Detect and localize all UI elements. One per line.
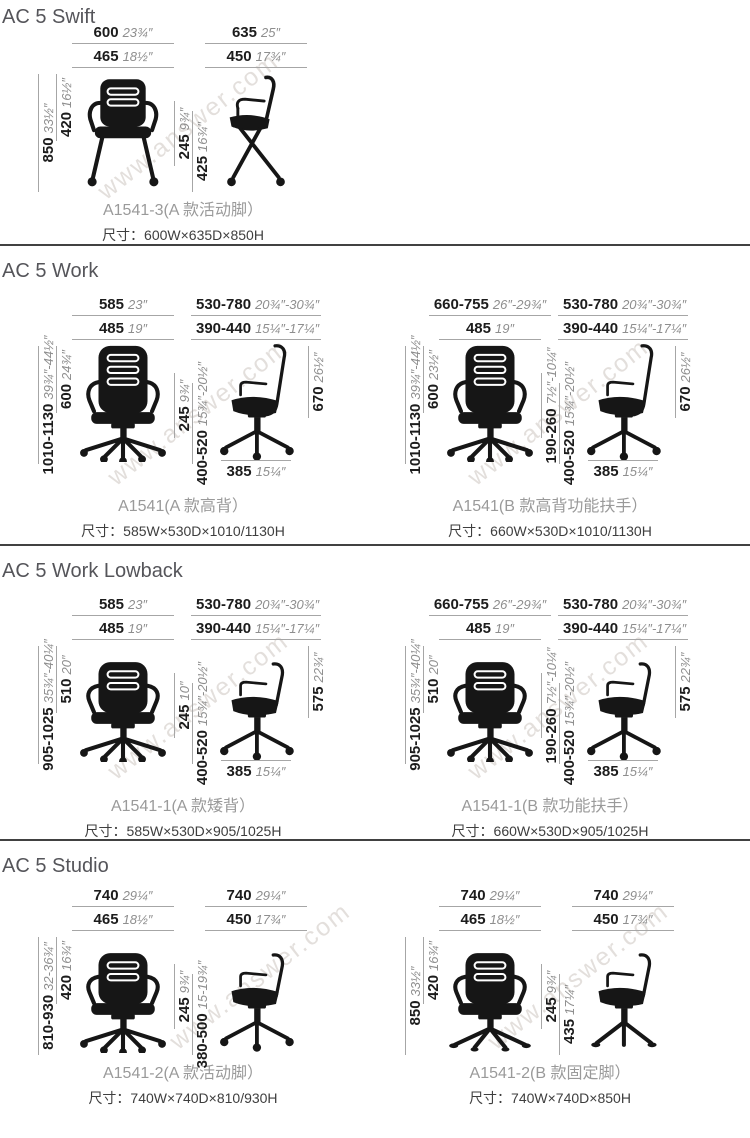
chair-front-highback-drawing [440,344,540,462]
mm-value: 390-440 [563,620,618,637]
dim-seat-depth: 390-44015¼″-17¼″ [191,320,321,340]
dim-armrest-height: 57522¾″ [675,646,695,718]
inch-value: 29¼″ [623,888,653,903]
dim-overall-width: 74029¼″ [425,887,555,907]
dim-arm-clearance: 2459¾″ [541,964,561,1029]
mm-value: 670 [677,386,694,411]
inch-value: 29¼″ [490,888,520,903]
dim-armrest-height: 57522¾″ [308,646,328,718]
chair-front-fixed-base-drawing [440,935,540,1053]
section-ac5-work: AC 5 Work 1010-113039¾″-44½″ 60024¾″ 585… [0,244,750,544]
inch-value: 35¾″-40¼″ [407,639,424,703]
mm-value: 740 [461,887,486,904]
chair-front-view [440,344,540,462]
chair-side-highback-drawing [573,344,673,462]
inch-value: 15¼″ [256,464,286,479]
inch-value: 20¾″-30¾″ [255,297,319,312]
mm-value: 600 [94,24,119,41]
inch-value: 26″-29¾″ [493,597,546,612]
chair-front-view [73,644,173,762]
mm-value: 585 [99,296,124,313]
mm-value: 485 [466,620,491,637]
chair-side-highback-drawing [206,344,306,462]
inch-value: 15¼″ [623,464,653,479]
dim-base-diameter: 38515¼″ [206,760,306,781]
dim-seat-width: 46518½″ [425,911,555,931]
inch-value: 9¾″ [176,380,193,403]
chair-side-fixed-base-drawing [573,935,673,1053]
dim-seat-width: 46518½″ [58,911,188,931]
inch-value: 23¾″ [123,25,153,40]
chair-front-view [73,935,173,1053]
inch-value: 19″ [128,321,147,336]
chair-front-view [440,644,540,762]
chair-side-lowback-drawing [206,644,306,762]
mm-value: 530-780 [196,296,251,313]
dim-overall-width: 660-75526″-29¾″ [425,596,555,616]
dim-seat-width: 48519″ [58,620,188,640]
dim-overall-width: 660-75526″-29¾″ [425,296,555,316]
dim-seat-width: 48519″ [425,620,555,640]
inch-value: 22¾″ [677,653,694,683]
dim-seat-width: 48519″ [425,320,555,340]
model-caption: A1541(B 款高背功能扶手） [395,492,705,516]
figures-container: 810-93032-36¾″ 42016¾″ 74029¼″ 46518½″ 2… [0,841,750,1138]
mm-value: 190-260 [543,708,560,763]
inch-value: 29¼″ [123,888,153,903]
dim-overall-height: 1010-113039¾″-44½″ [405,346,425,464]
inch-value: 33½″ [40,104,57,134]
dim-overall-width: 58523″ [58,596,188,616]
inch-value: 23″ [128,597,147,612]
model-caption: A1541-1(A 款矮背） [28,792,338,816]
mm-value: 850 [407,1000,424,1025]
size-caption: 尺寸：585W×530D×905/1025H [28,821,338,841]
chair-figure: 85033½″ 42016½″ 60023¾″ 46518½″ 2459¾″ 4… [28,24,338,245]
mm-value: 740 [94,887,119,904]
inch-value: 33½″ [407,967,424,997]
inch-value: 18½″ [123,912,153,927]
inch-value: 20¾″-30¾″ [255,597,319,612]
mm-value: 670 [310,386,327,411]
chair-figure: 810-93032-36¾″ 42016¾″ 74029¼″ 46518½″ 2… [28,887,338,1108]
inch-value: 26½″ [677,353,694,383]
dim-overall-height: 85033½″ [405,937,425,1055]
chair-figure: 1010-113039¾″-44½″ 60024¾″ 58523″ 48519″… [28,296,338,541]
dimension-diagram: 905-102535¾″-40¼″ 51020″ 58523″ 48519″ 2… [28,596,338,784]
inch-value: 17¾″ [623,912,653,927]
mm-value: 850 [40,137,57,162]
chair-side-view [573,644,673,762]
chair-front-lowback-drawing [440,644,540,762]
inch-value: 15¼″ [256,764,286,779]
chair-side-view [206,72,306,190]
dim-seat-width: 46518½″ [58,48,188,68]
mm-value: 450 [227,911,252,928]
dim-seat-depth: 390-44015¼″-17¼″ [558,320,688,340]
inch-value: 9¾″ [176,108,193,131]
dim-base-diameter: 38515¼″ [573,460,673,481]
inch-value: 18½″ [490,912,520,927]
mm-value: 485 [466,320,491,337]
dim-base-diameter: 38515¼″ [206,460,306,481]
dimension-diagram: 85033½″ 42016¾″ 74029¼″ 46518½″ 2459¾″ 4… [395,887,705,1075]
dim-arm-clearance: 190-2607½″-10¼″ [541,373,561,438]
inch-value: 29¼″ [256,888,286,903]
mm-value: 465 [461,911,486,928]
mm-value: 660-755 [434,596,489,613]
mm-value: 1010-1130 [40,404,57,475]
inch-value: 39¾″-44½″ [407,335,424,399]
inch-value: 18½″ [123,49,153,64]
mm-value: 390-440 [196,620,251,637]
dim-seat-depth: 45017¾″ [191,911,321,931]
dim-overall-depth: 74029¼″ [191,887,321,907]
inch-value: 20¾″-30¾″ [622,297,686,312]
mm-value: 245 [176,997,193,1022]
mm-value: 810-930 [40,995,57,1050]
dim-overall-width: 74029¼″ [58,887,188,907]
dim-overall-height: 905-102535¾″-40¼″ [38,646,58,764]
chair-side-view [206,644,306,762]
inch-value: 32-36¾″ [40,942,57,991]
mm-value: 385 [227,763,252,780]
chair-front-view [440,935,540,1053]
mm-value: 905-1025 [40,707,57,770]
dimension-diagram: 1010-113039¾″-44½″ 60024¾″ 58523″ 48519″… [28,296,338,484]
dim-seat-width: 48519″ [58,320,188,340]
inch-value: 15¼″-17¼″ [255,321,319,336]
dim-overall-height: 1010-113039¾″-44½″ [38,346,58,464]
mm-value: 635 [232,24,257,41]
dim-overall-width: 58523″ [58,296,188,316]
dim-arm-clearance: 2459¾″ [174,101,194,166]
mm-value: 485 [99,320,124,337]
inch-value: 22¾″ [310,653,327,683]
figures-container: 1010-113039¾″-44½″ 60024¾″ 58523″ 48519″… [0,246,750,544]
section-ac5-swift: AC 5 Swift 85033½″ 42016½″ 60023¾″ 46518… [0,0,750,244]
dim-overall-depth: 530-78020¾″-30¾″ [558,596,688,616]
mm-value: 245 [176,705,193,730]
section-ac5-work-lowback: AC 5 Work Lowback 905-102535¾″-40¼″ 5102… [0,544,750,839]
dim-arm-clearance: 190-2607½″-10¼″ [541,673,561,738]
dimension-diagram: 905-102535¾″-40¼″ 51020″ 660-75526″-29¾″… [395,596,705,784]
dim-armrest-height: 67026½″ [675,346,695,418]
mm-value: 905-1025 [407,707,424,770]
dim-arm-clearance: 2459¾″ [174,373,194,438]
mm-value: 390-440 [563,320,618,337]
dim-overall-depth: 74029¼″ [558,887,688,907]
figures-container: 905-102535¾″-40¼″ 51020″ 58523″ 48519″ 2… [0,546,750,839]
dim-overall-height: 810-93032-36¾″ [38,937,58,1055]
inch-value: 20¾″-30¾″ [622,597,686,612]
mm-value: 190-260 [543,408,560,463]
dim-seat-depth: 45017¾″ [558,911,688,931]
inch-value: 7½″-10¼″ [543,348,560,405]
chair-front-lowback-drawing [73,935,173,1053]
dim-overall-depth: 530-78020¾″-30¾″ [558,296,688,316]
mm-value: 585 [99,596,124,613]
inch-value: 25″ [261,25,280,40]
size-caption: 尺寸：740W×740D×850H [395,1088,705,1108]
inch-value: 39¾″-44½″ [40,335,57,399]
mm-value: 385 [227,463,252,480]
chair-side-view [573,935,673,1053]
mm-value: 575 [677,686,694,711]
spec-sheet-page: www.answer.com www.answer.com www.answer… [0,0,750,1138]
chair-figure: 905-102535¾″-40¼″ 51020″ 58523″ 48519″ 2… [28,596,338,841]
chair-side-view [206,344,306,462]
dim-arm-clearance: 2459¾″ [174,964,194,1029]
dim-seat-depth: 390-44015¼″-17¼″ [558,620,688,640]
inch-value: 7½″-10¼″ [543,648,560,705]
inch-value: 26½″ [310,353,327,383]
dimension-diagram: 1010-113039¾″-44½″ 60023½″ 660-75526″-29… [395,296,705,484]
inch-value: 9¾″ [176,971,193,994]
mm-value: 575 [310,686,327,711]
size-caption: 尺寸：740W×740D×810/930H [28,1088,338,1108]
mm-value: 390-440 [196,320,251,337]
size-caption: 尺寸：660W×530D×905/1025H [395,821,705,841]
dim-overall-depth: 63525″ [191,24,321,44]
dim-overall-height: 85033½″ [38,74,58,192]
figures-container: 85033½″ 42016½″ 60023¾″ 46518½″ 2459¾″ 4… [0,0,750,244]
size-caption: 尺寸：600W×635D×850H [28,225,338,245]
inch-value: 15¼″-17¼″ [255,621,319,636]
inch-value: 26″-29¾″ [493,297,546,312]
dim-seat-depth: 45017¾″ [191,48,321,68]
mm-value: 660-755 [434,296,489,313]
section-ac5-studio: AC 5 Studio 810-93032-36¾″ 42016¾″ 74029… [0,839,750,1138]
dim-overall-depth: 530-78020¾″-30¾″ [191,296,321,316]
inch-value: 35¾″-40¼″ [40,639,57,703]
chair-figure: 1010-113039¾″-44½″ 60023½″ 660-75526″-29… [395,296,705,541]
chair-front-highback-drawing [73,344,173,462]
mm-value: 530-780 [563,596,618,613]
inch-value: 9¾″ [543,971,560,994]
dim-overall-depth: 530-78020¾″-30¾″ [191,596,321,616]
inch-value: 19″ [495,321,514,336]
mm-value: 740 [594,887,619,904]
inch-value: 15¼″-17¼″ [622,621,686,636]
mm-value: 740 [227,887,252,904]
mm-value: 385 [594,763,619,780]
mm-value: 245 [176,134,193,159]
inch-value: 17¾″ [256,49,286,64]
mm-value: 530-780 [563,296,618,313]
chair-side-lowback-drawing [206,935,306,1053]
mm-value: 385 [594,463,619,480]
chair-figure: 85033½″ 42016¾″ 74029¼″ 46518½″ 2459¾″ 4… [395,887,705,1108]
model-caption: A1541(A 款高背） [28,492,338,516]
inch-value: 10″ [176,681,193,700]
chair-side-swift-drawing [206,72,306,190]
inch-value: 15¼″-17¼″ [622,321,686,336]
dim-arm-clearance: 24510″ [174,673,194,738]
mm-value: 245 [543,997,560,1022]
mm-value: 530-780 [196,596,251,613]
chair-front-lowback-drawing [73,644,173,762]
inch-value: 23″ [128,297,147,312]
dim-overall-height: 905-102535¾″-40¼″ [405,646,425,764]
dim-armrest-height: 67026½″ [308,346,328,418]
dim-overall-width: 60023¾″ [58,24,188,44]
chair-side-lowback-drawing [573,644,673,762]
size-caption: 尺寸：585W×530D×1010/1130H [28,521,338,541]
chair-side-view [206,935,306,1053]
inch-value: 17¾″ [256,912,286,927]
dim-base-diameter: 38515¼″ [573,760,673,781]
model-caption: A1541-1(B 款功能扶手） [395,792,705,816]
mm-value: 1010-1130 [407,404,424,475]
chair-front-view [73,344,173,462]
size-caption: 尺寸：660W×530D×1010/1130H [395,521,705,541]
dim-seat-depth: 390-44015¼″-17¼″ [191,620,321,640]
chair-front-view [73,72,173,190]
chair-side-view [573,344,673,462]
mm-value: 465 [94,911,119,928]
mm-value: 450 [594,911,619,928]
mm-value: 485 [99,620,124,637]
inch-value: 19″ [128,621,147,636]
dimension-diagram: 810-93032-36¾″ 42016¾″ 74029¼″ 46518½″ 2… [28,887,338,1075]
mm-value: 245 [176,406,193,431]
dimension-diagram: 85033½″ 42016½″ 60023¾″ 46518½″ 2459¾″ 4… [28,24,338,212]
mm-value: 450 [227,48,252,65]
inch-value: 19″ [495,621,514,636]
chair-front-swift-drawing [73,72,173,190]
chair-figure: 905-102535¾″-40¼″ 51020″ 660-75526″-29¾″… [395,596,705,841]
mm-value: 465 [94,48,119,65]
inch-value: 15¼″ [623,764,653,779]
